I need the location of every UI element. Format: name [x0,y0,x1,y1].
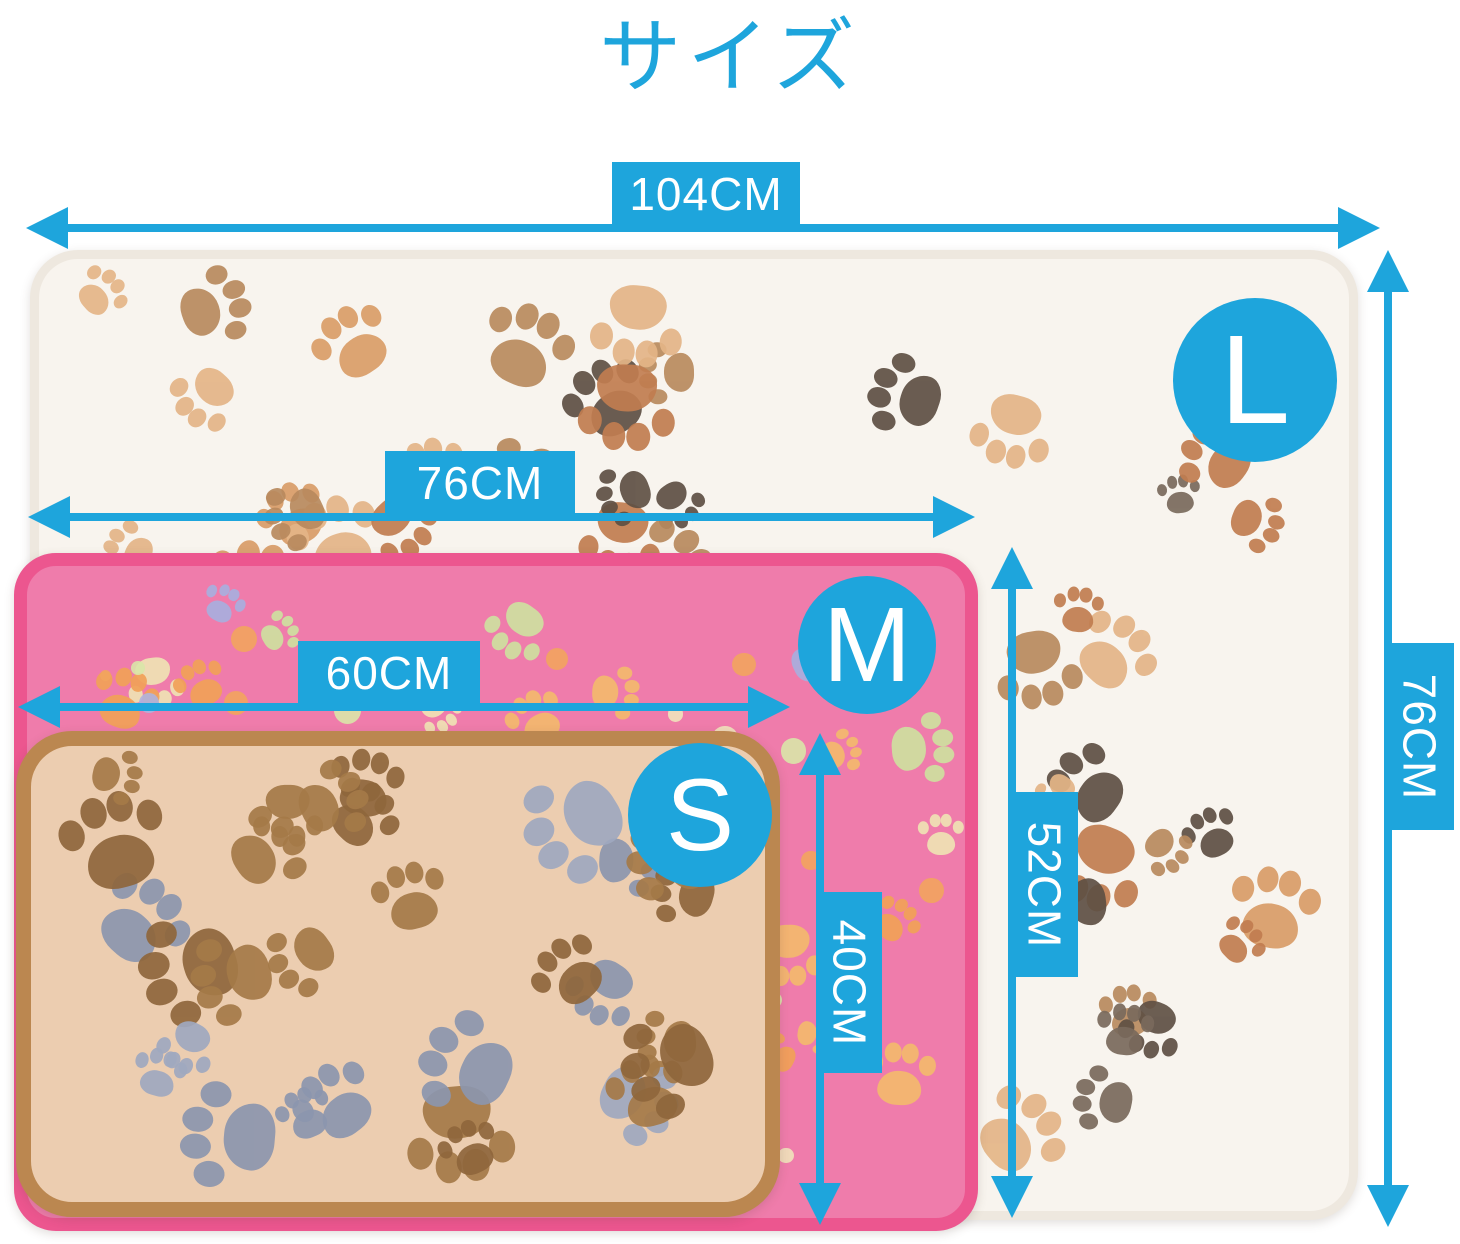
dimension-label-m-width: 76CM [385,451,575,515]
dimension-value: 40CM [822,919,876,1046]
dimension-value: 104CM [629,167,782,221]
page-title: サイズ [0,0,1460,109]
dimension-label-s-width: 60CM [298,641,480,705]
size-diagram: サイズ [0,0,1460,1244]
size-letter: S [666,764,734,866]
dimension-label-l-height: 76CM [1384,643,1454,830]
size-letter: L [1220,317,1290,443]
dimension-label-s-height: 40CM [816,892,882,1073]
dimension-label-m-height: 52CM [1010,792,1078,977]
dimension-value: 60CM [326,646,453,700]
dimension-value: 52CM [1017,821,1071,948]
size-badge-m: M [798,576,936,714]
size-letter: M [823,592,911,698]
dimension-value: 76CM [417,456,544,510]
size-badge-s: S [628,743,772,887]
dimension-value: 76CM [1392,673,1446,800]
size-badge-l: L [1173,298,1337,462]
dimension-label-l-width: 104CM [612,162,800,226]
